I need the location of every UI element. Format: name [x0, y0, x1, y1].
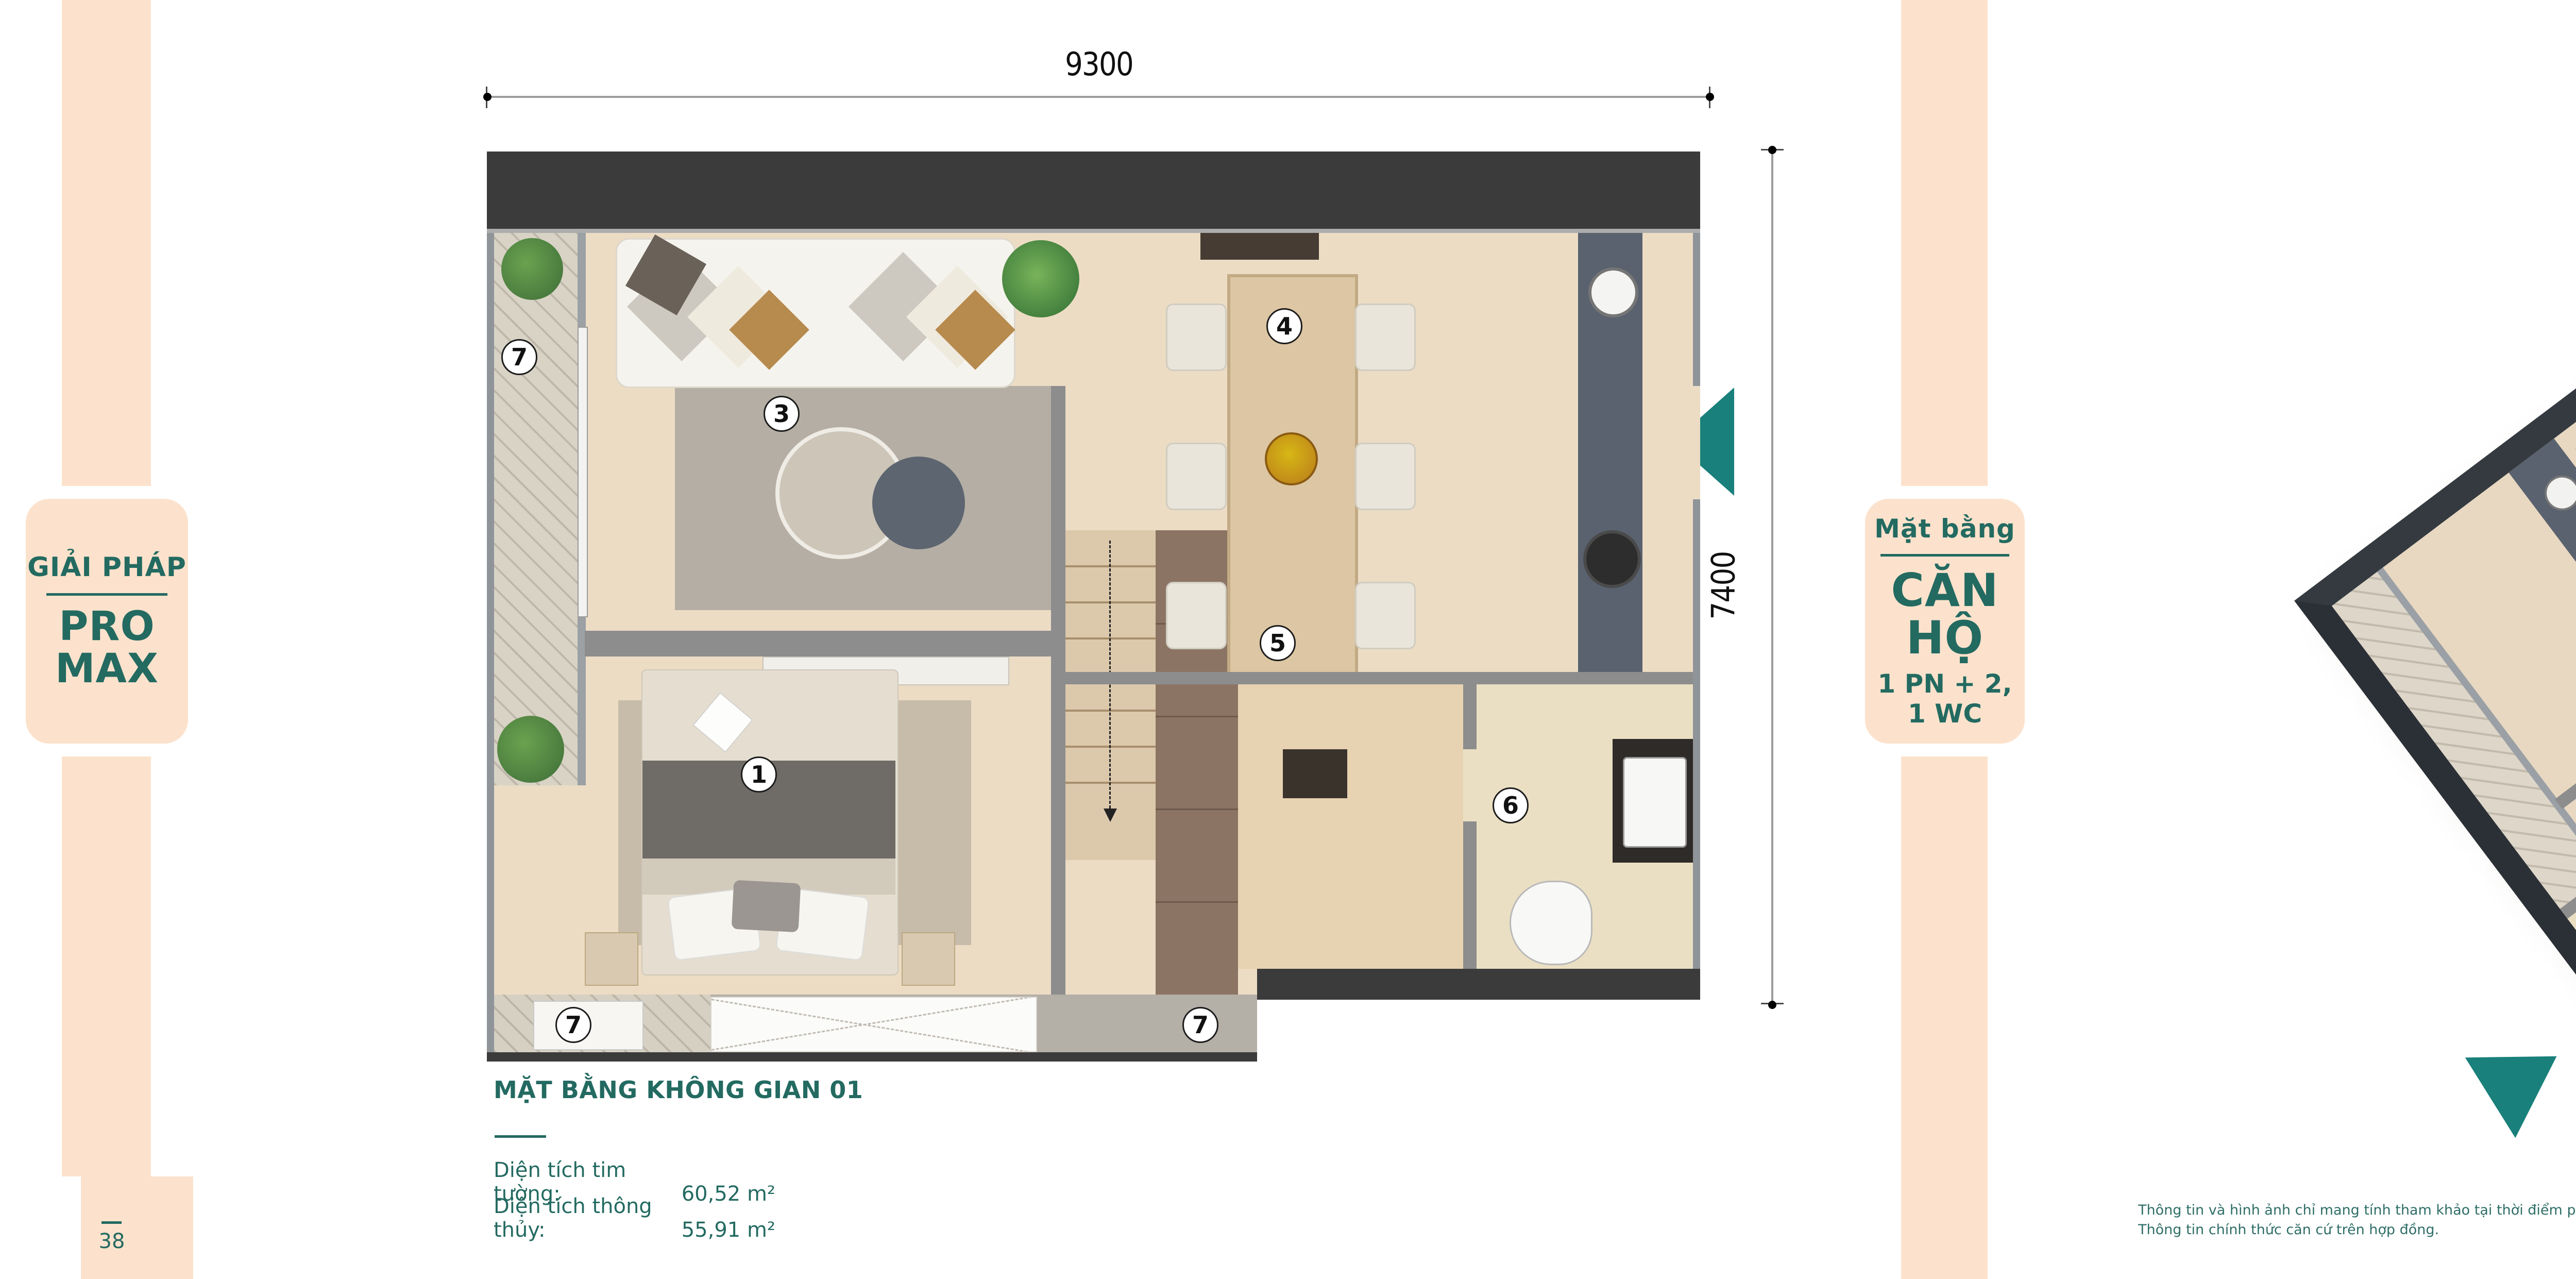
upper-cabinets — [1200, 233, 1319, 260]
tv-wall — [585, 631, 1051, 657]
plan-marker: 4 — [1266, 308, 1302, 344]
center-accent-band-bottom — [1901, 756, 1988, 1279]
wall-top — [487, 152, 1700, 229]
unit-badge-title: CĂN HỘ — [1865, 567, 2025, 662]
dimension-height-line — [1771, 149, 1773, 1005]
wall-core — [1051, 386, 1065, 997]
plan-title-rule — [495, 1135, 546, 1138]
wc-toilet — [1510, 881, 1592, 965]
dining-chair — [1355, 443, 1416, 510]
floor-plan-3d — [2294, 144, 2576, 1059]
area-value: 55,91 m² — [682, 1218, 775, 1242]
solution-badge: GIẢI PHÁP PRO MAX — [26, 499, 188, 744]
unit-badge-subtitle: 1 PN + 2, 1 WC — [1865, 669, 2025, 729]
coffee-table-small — [872, 457, 965, 549]
fruit-bowl — [1265, 432, 1318, 485]
disclaimer: Thông tin và hình ảnh chỉ mang tính tham… — [2138, 1201, 2576, 1240]
left-footer-block: 38 — [81, 1176, 193, 1279]
left-page-number: 38 — [86, 1230, 138, 1253]
entry-opening — [1693, 386, 1700, 499]
unit-badge-divider — [1880, 554, 2009, 557]
bed — [641, 669, 899, 975]
center-accent-band-top — [1901, 0, 1988, 486]
nightstand-right — [902, 932, 955, 986]
hall-floor — [1238, 684, 1463, 969]
plan-marker: 7 — [501, 339, 537, 375]
dining-chair — [1166, 304, 1227, 371]
wc-wall-left-lower — [1463, 821, 1477, 969]
plan-marker: 5 — [1260, 625, 1296, 661]
wall-top-edge — [487, 229, 1700, 233]
area-label: Diện tích thông thủy: — [494, 1194, 675, 1242]
plan-marker: 7 — [1182, 1007, 1218, 1043]
dining-chair — [1166, 443, 1227, 510]
iso-kitchen-marble — [2509, 439, 2576, 679]
plan-marker: 3 — [764, 396, 800, 432]
wc-basin — [1623, 757, 1687, 848]
balcony-mattress — [710, 997, 1037, 1052]
disclaimer-line1: Thông tin và hình ảnh chỉ mang tính tham… — [2138, 1201, 2576, 1220]
solution-badge-eyebrow: GIẢI PHÁP — [27, 552, 187, 583]
plan-title: MẶT BẰNG KHÔNG GIAN 01 — [494, 1076, 863, 1104]
wall-bottom-right — [1257, 969, 1700, 1000]
unit-badge-eyebrow: Mặt bằng — [1874, 514, 2015, 544]
plan-marker: 1 — [741, 756, 777, 793]
kitchen-stove — [1583, 530, 1641, 588]
dining-chair — [1355, 304, 1416, 371]
balcony-left — [494, 233, 578, 785]
wall-hall-top — [1065, 672, 1693, 684]
dining-chair — [1166, 582, 1227, 649]
brochure-spread: GIẢI PHÁP PRO MAX 38 9300 7400 — [0, 0, 2576, 1279]
wc-wall-left-upper — [1463, 684, 1477, 749]
left-accent-band-bottom — [62, 756, 151, 1176]
plan-marker: 7 — [555, 1007, 591, 1043]
kitchen-sink — [1588, 267, 1638, 317]
dimension-height-label: 7400 — [1705, 531, 1742, 640]
plan-marker: 6 — [1493, 787, 1529, 823]
shoe-rack — [1283, 749, 1347, 798]
balcony-door-frame — [578, 327, 588, 617]
dimension-width: 9300 — [487, 41, 1710, 113]
solution-badge-title: PRO MAX — [26, 606, 188, 691]
nightstand-left — [585, 932, 638, 986]
plant-living — [1002, 240, 1079, 317]
dimension-height: 7400 — [1716, 149, 1819, 1005]
iso-wall-2 — [2555, 570, 2576, 810]
dining-chair — [1355, 582, 1416, 649]
entrance-arrow-3d — [2465, 1016, 2576, 1138]
stairs — [1065, 530, 1156, 860]
plant-balcony-bottom — [497, 716, 564, 783]
dimension-width-line — [487, 96, 1710, 98]
solution-badge-divider — [46, 593, 167, 596]
iso-balcony — [2332, 572, 2576, 919]
left-page-number-rule — [101, 1221, 122, 1224]
wall-right — [1693, 233, 1700, 969]
wall-left — [487, 233, 494, 1062]
wall-bottom-left — [487, 1052, 1257, 1062]
dimension-width-label: 9300 — [1044, 45, 1153, 83]
area-row: Diện tích thông thủy: 55,91 m² — [494, 1194, 775, 1242]
left-accent-band-top — [62, 0, 151, 486]
unit-badge: Mặt bằng CĂN HỘ 1 PN + 2, 1 WC — [1865, 499, 2025, 744]
disclaimer-line2: Thông tin chính thức căn cứ trên hợp đồn… — [2138, 1220, 2576, 1240]
plant-balcony-top — [501, 238, 563, 300]
floor-plan-2d: 1 3 4 5 6 7 7 7 — [487, 152, 1700, 1062]
